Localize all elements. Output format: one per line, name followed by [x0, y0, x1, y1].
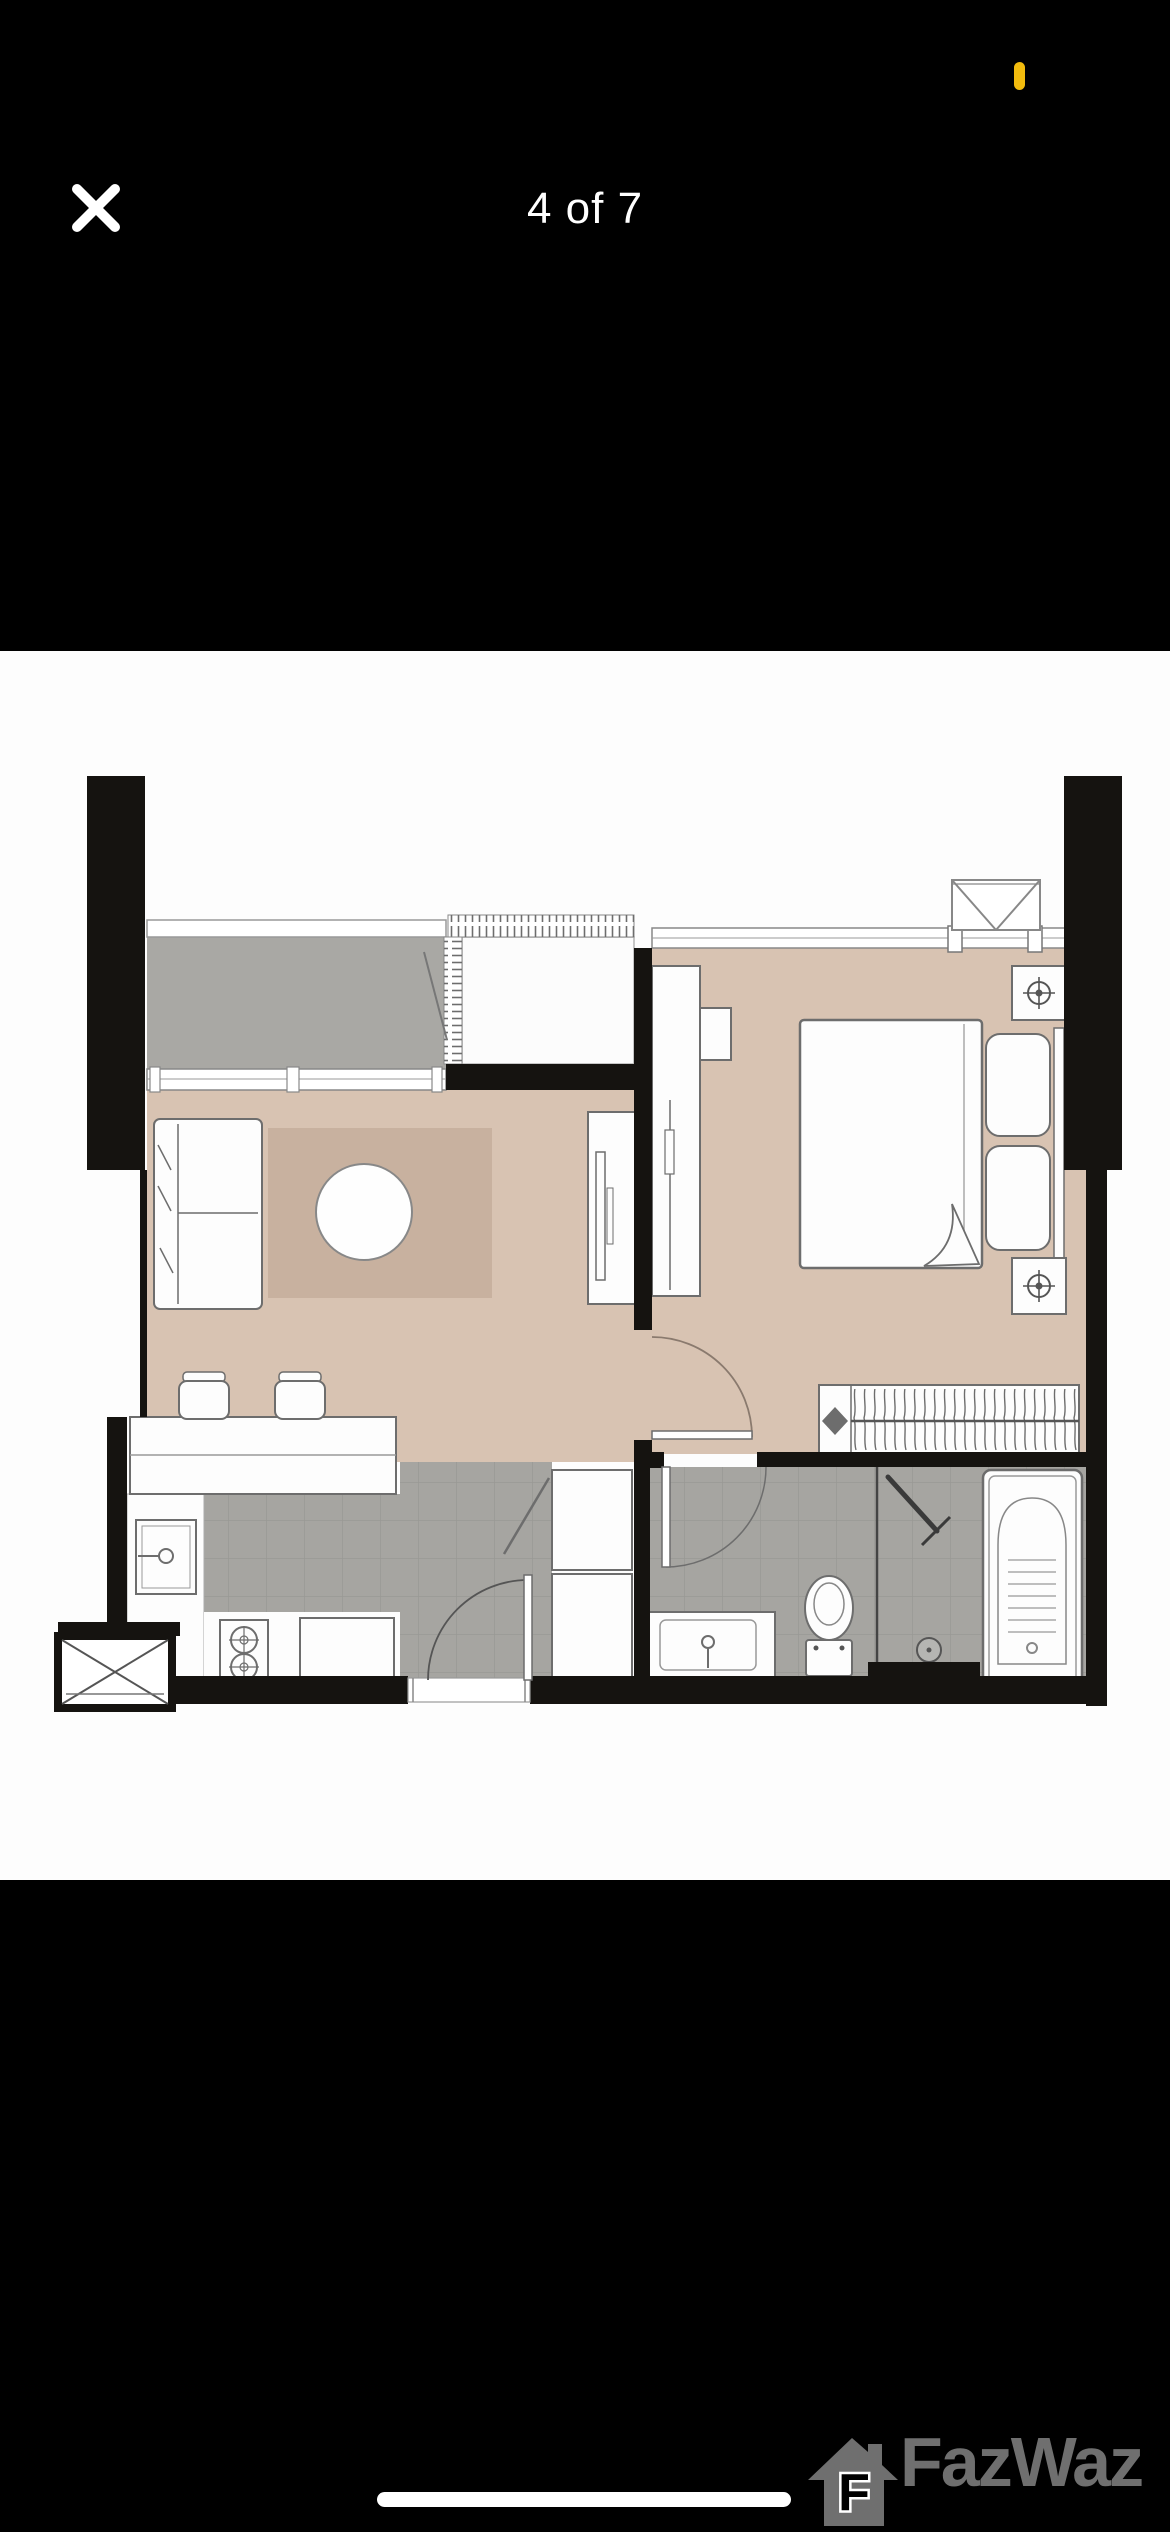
balcony-floor [147, 937, 446, 1069]
ac-condenser-unit [952, 880, 1040, 930]
bathtub [983, 1470, 1082, 1692]
home-indicator[interactable] [377, 2492, 791, 2507]
kitchen-sink [136, 1520, 196, 1594]
floorplan [0, 651, 1170, 1880]
fridge [552, 1470, 632, 1570]
photo-viewer-screen: 4 of 7 [0, 0, 1170, 2532]
ac-ledge-room [462, 937, 634, 1064]
tv-cabinet [588, 1112, 641, 1304]
entrance-threshold [408, 1678, 530, 1702]
photo-viewer-image[interactable] [0, 651, 1170, 1880]
nightstand [1012, 1258, 1066, 1314]
kitchen-cabinet [552, 1574, 632, 1678]
living-window [147, 1067, 446, 1092]
kitchen-appliance [300, 1618, 394, 1678]
bedroom-doorway-floor [634, 1330, 652, 1442]
pillow [986, 1146, 1050, 1250]
column-right [1064, 776, 1122, 1170]
pillow [986, 1034, 1050, 1136]
nightstand [1012, 966, 1066, 1020]
watermark: F FazWaz [806, 2434, 1170, 2530]
fazwaz-icon-letter: F [838, 2464, 870, 2522]
toilet [805, 1576, 853, 1676]
viewer-navbar: 4 of 7 [0, 0, 1170, 300]
sofa [154, 1119, 262, 1309]
fazwaz-brand-text: FazWaz [900, 2422, 1142, 2502]
elevator-shaft [58, 1636, 172, 1708]
column-left [87, 776, 145, 1170]
image-counter: 4 of 7 [0, 184, 1170, 234]
bar-stool [179, 1372, 229, 1419]
bar-stool [275, 1372, 325, 1419]
fazwaz-house-icon: F [806, 2434, 902, 2530]
breakfast-counter [130, 1417, 396, 1494]
headboard [1054, 1028, 1064, 1260]
coffee-table [316, 1164, 412, 1260]
vanity-sink [648, 1612, 775, 1678]
stove [220, 1620, 268, 1681]
wardrobe-hangers [819, 1385, 1079, 1458]
balcony-railing [147, 920, 446, 937]
